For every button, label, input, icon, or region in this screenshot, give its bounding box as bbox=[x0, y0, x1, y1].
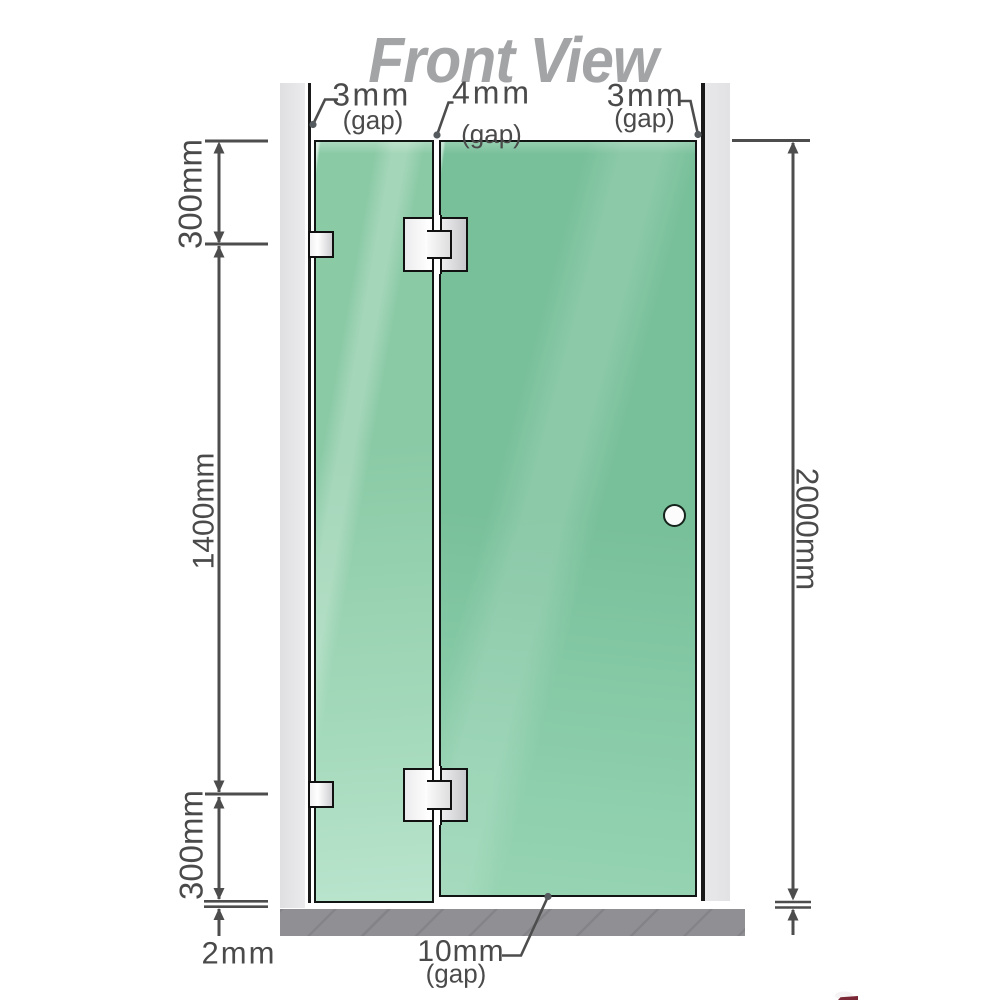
svg-text:4mm: 4mm bbox=[452, 75, 532, 111]
svg-text:(gap): (gap) bbox=[426, 959, 487, 989]
svg-text:(gap): (gap) bbox=[343, 105, 404, 135]
svg-text:2mm: 2mm bbox=[202, 936, 277, 971]
svg-text:(gap): (gap) bbox=[614, 103, 675, 133]
svg-text:(gap): (gap) bbox=[461, 119, 522, 149]
svg-text:2000mm: 2000mm bbox=[790, 468, 826, 591]
svg-text:300mm: 300mm bbox=[172, 139, 209, 249]
svg-text:300mm: 300mm bbox=[173, 790, 210, 900]
svg-text:1400mm: 1400mm bbox=[188, 453, 221, 570]
